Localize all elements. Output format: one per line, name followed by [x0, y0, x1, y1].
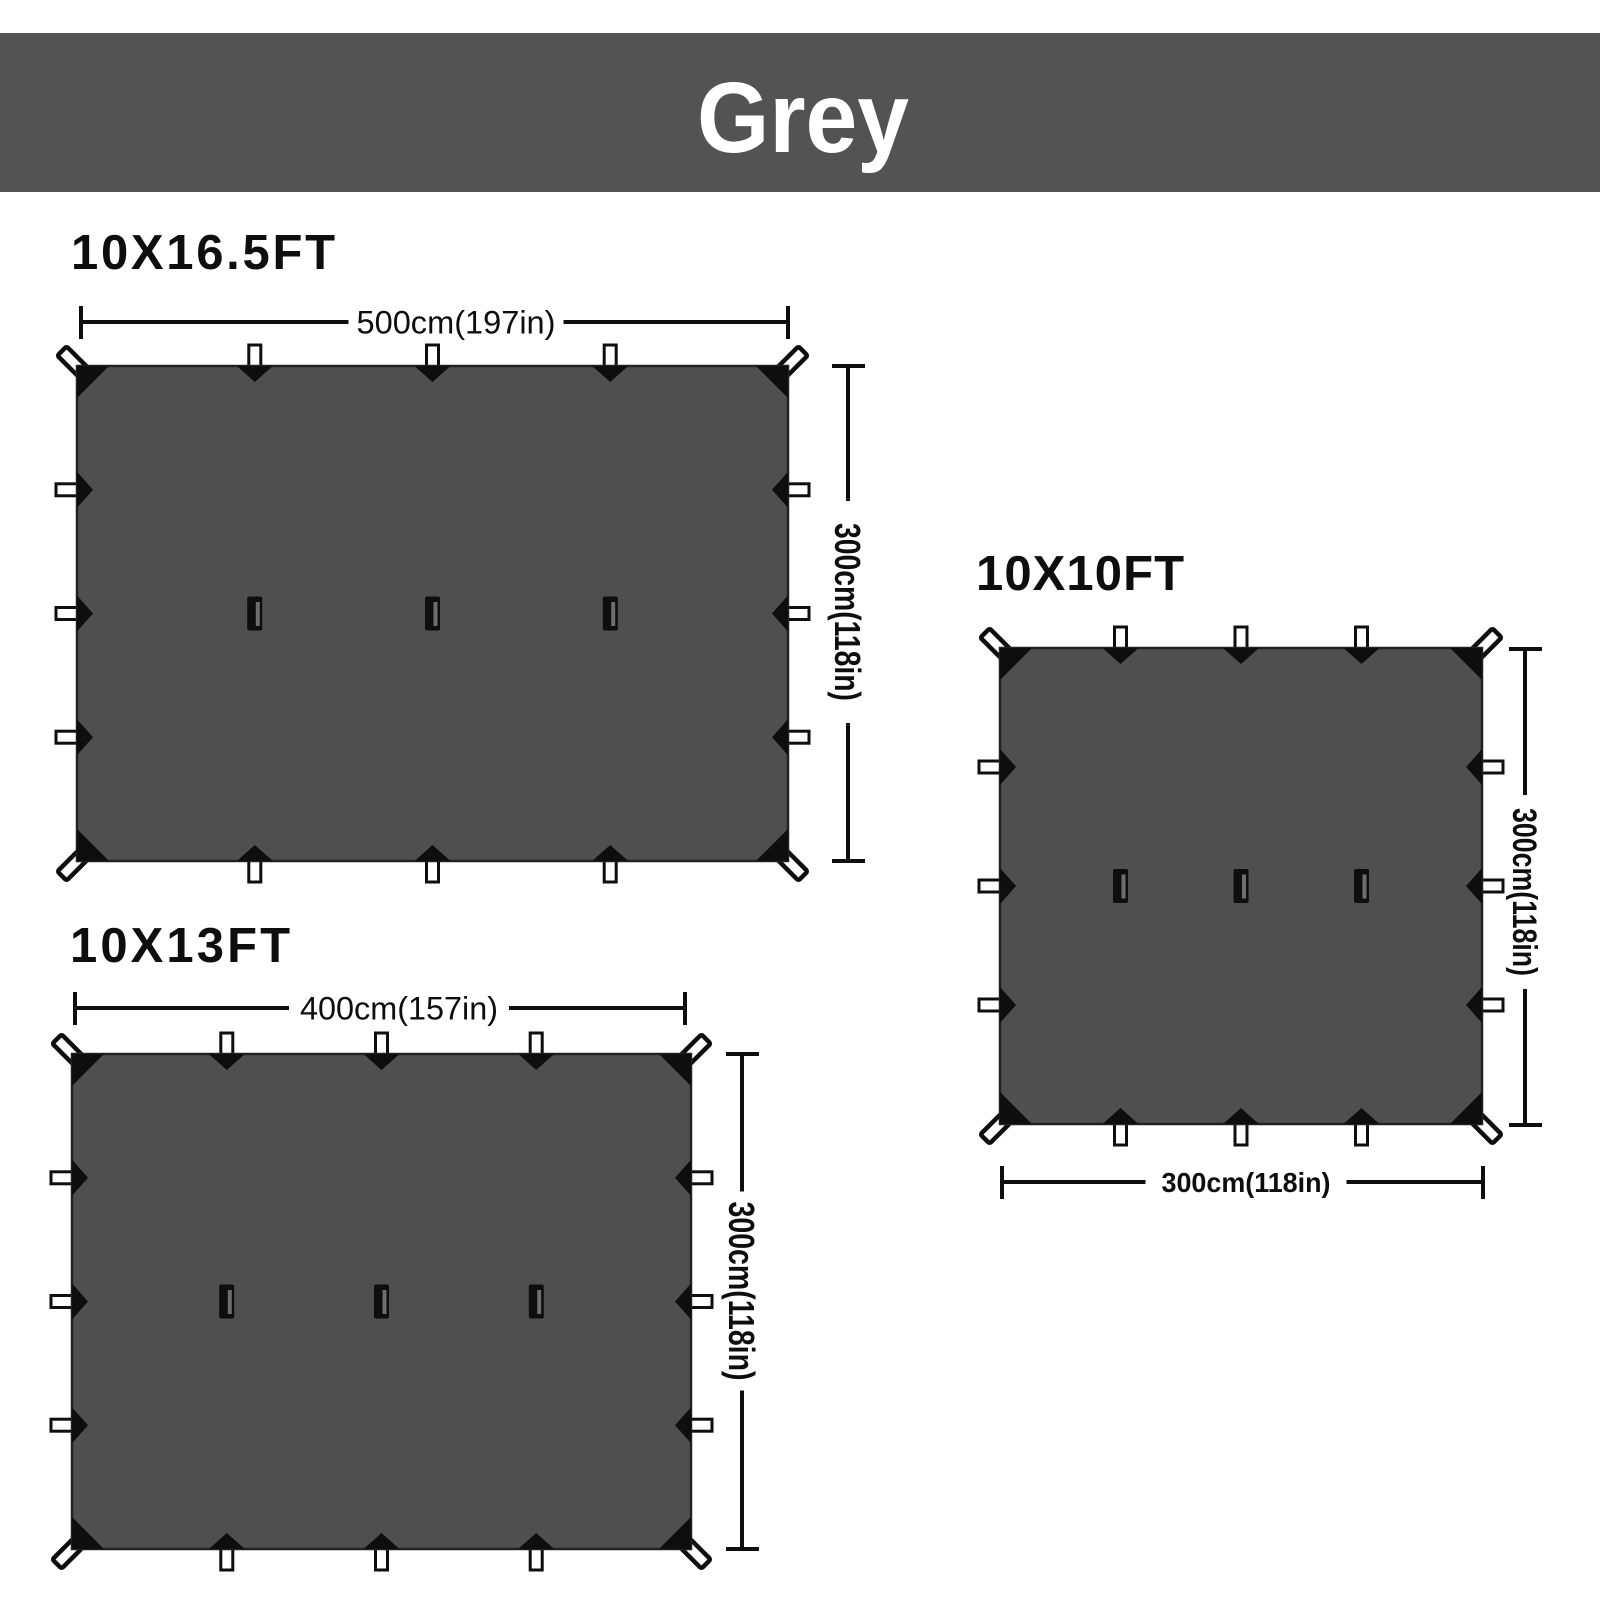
svg-text:10X13FT: 10X13FT	[70, 919, 290, 973]
svg-text:300cm(118in): 300cm(118in)	[1162, 1167, 1331, 1198]
svg-text:Grey: Grey	[697, 62, 909, 174]
svg-text:500cm(197in): 500cm(197in)	[357, 305, 556, 341]
svg-text:300cm(118in): 300cm(118in)	[721, 1202, 762, 1381]
svg-text:10X10FT: 10X10FT	[976, 547, 1184, 601]
svg-text:400cm(157in): 400cm(157in)	[300, 991, 498, 1027]
svg-text:10X16.5FT: 10X16.5FT	[71, 226, 335, 280]
svg-text:300cm(118in): 300cm(118in)	[1505, 808, 1543, 976]
svg-text:300cm(118in): 300cm(118in)	[827, 523, 868, 701]
